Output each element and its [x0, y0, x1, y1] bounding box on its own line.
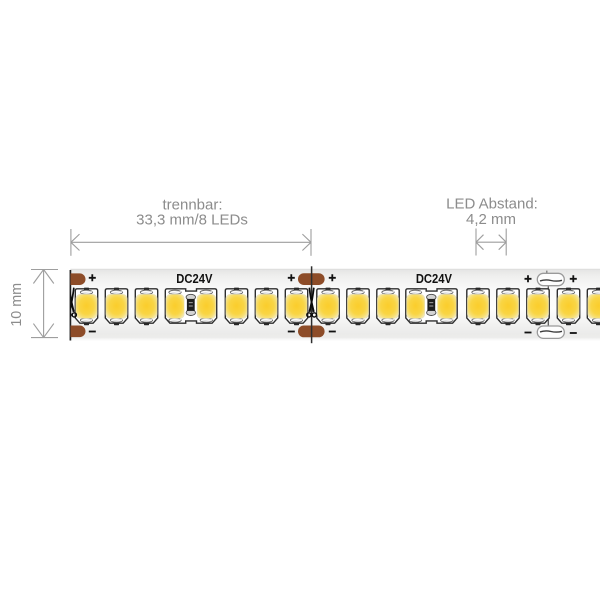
svg-text:4,2 mm: 4,2 mm	[466, 211, 516, 228]
svg-text:33,3 mm/8 LEDs: 33,3 mm/8 LEDs	[136, 212, 248, 229]
svg-text:DC24V: DC24V	[416, 271, 453, 286]
svg-text:LED Abstand:: LED Abstand:	[446, 196, 538, 213]
svg-text:10 mm: 10 mm	[9, 283, 25, 327]
svg-text:DC24V: DC24V	[176, 271, 213, 286]
